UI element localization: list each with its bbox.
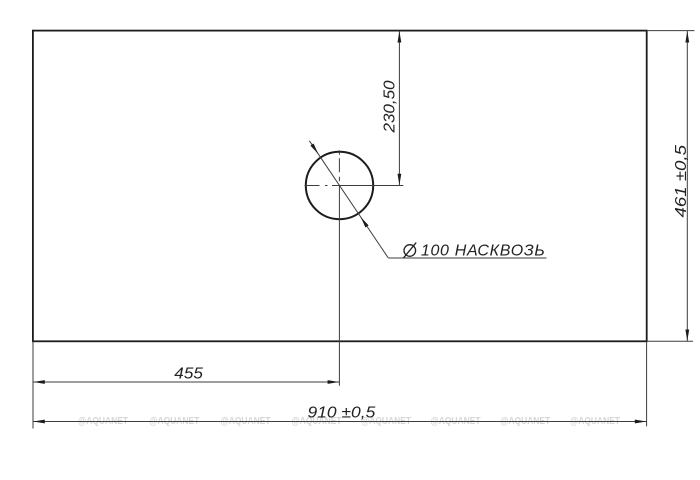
svg-text:461 ±0,5: 461 ±0,5 (673, 145, 690, 218)
svg-text:455: 455 (174, 365, 203, 382)
svg-text:910 ±0,5: 910 ±0,5 (308, 404, 376, 421)
svg-text:100 НАСКВОЗЬ: 100 НАСКВОЗЬ (421, 242, 545, 259)
svg-text:230,50: 230,50 (382, 80, 399, 133)
